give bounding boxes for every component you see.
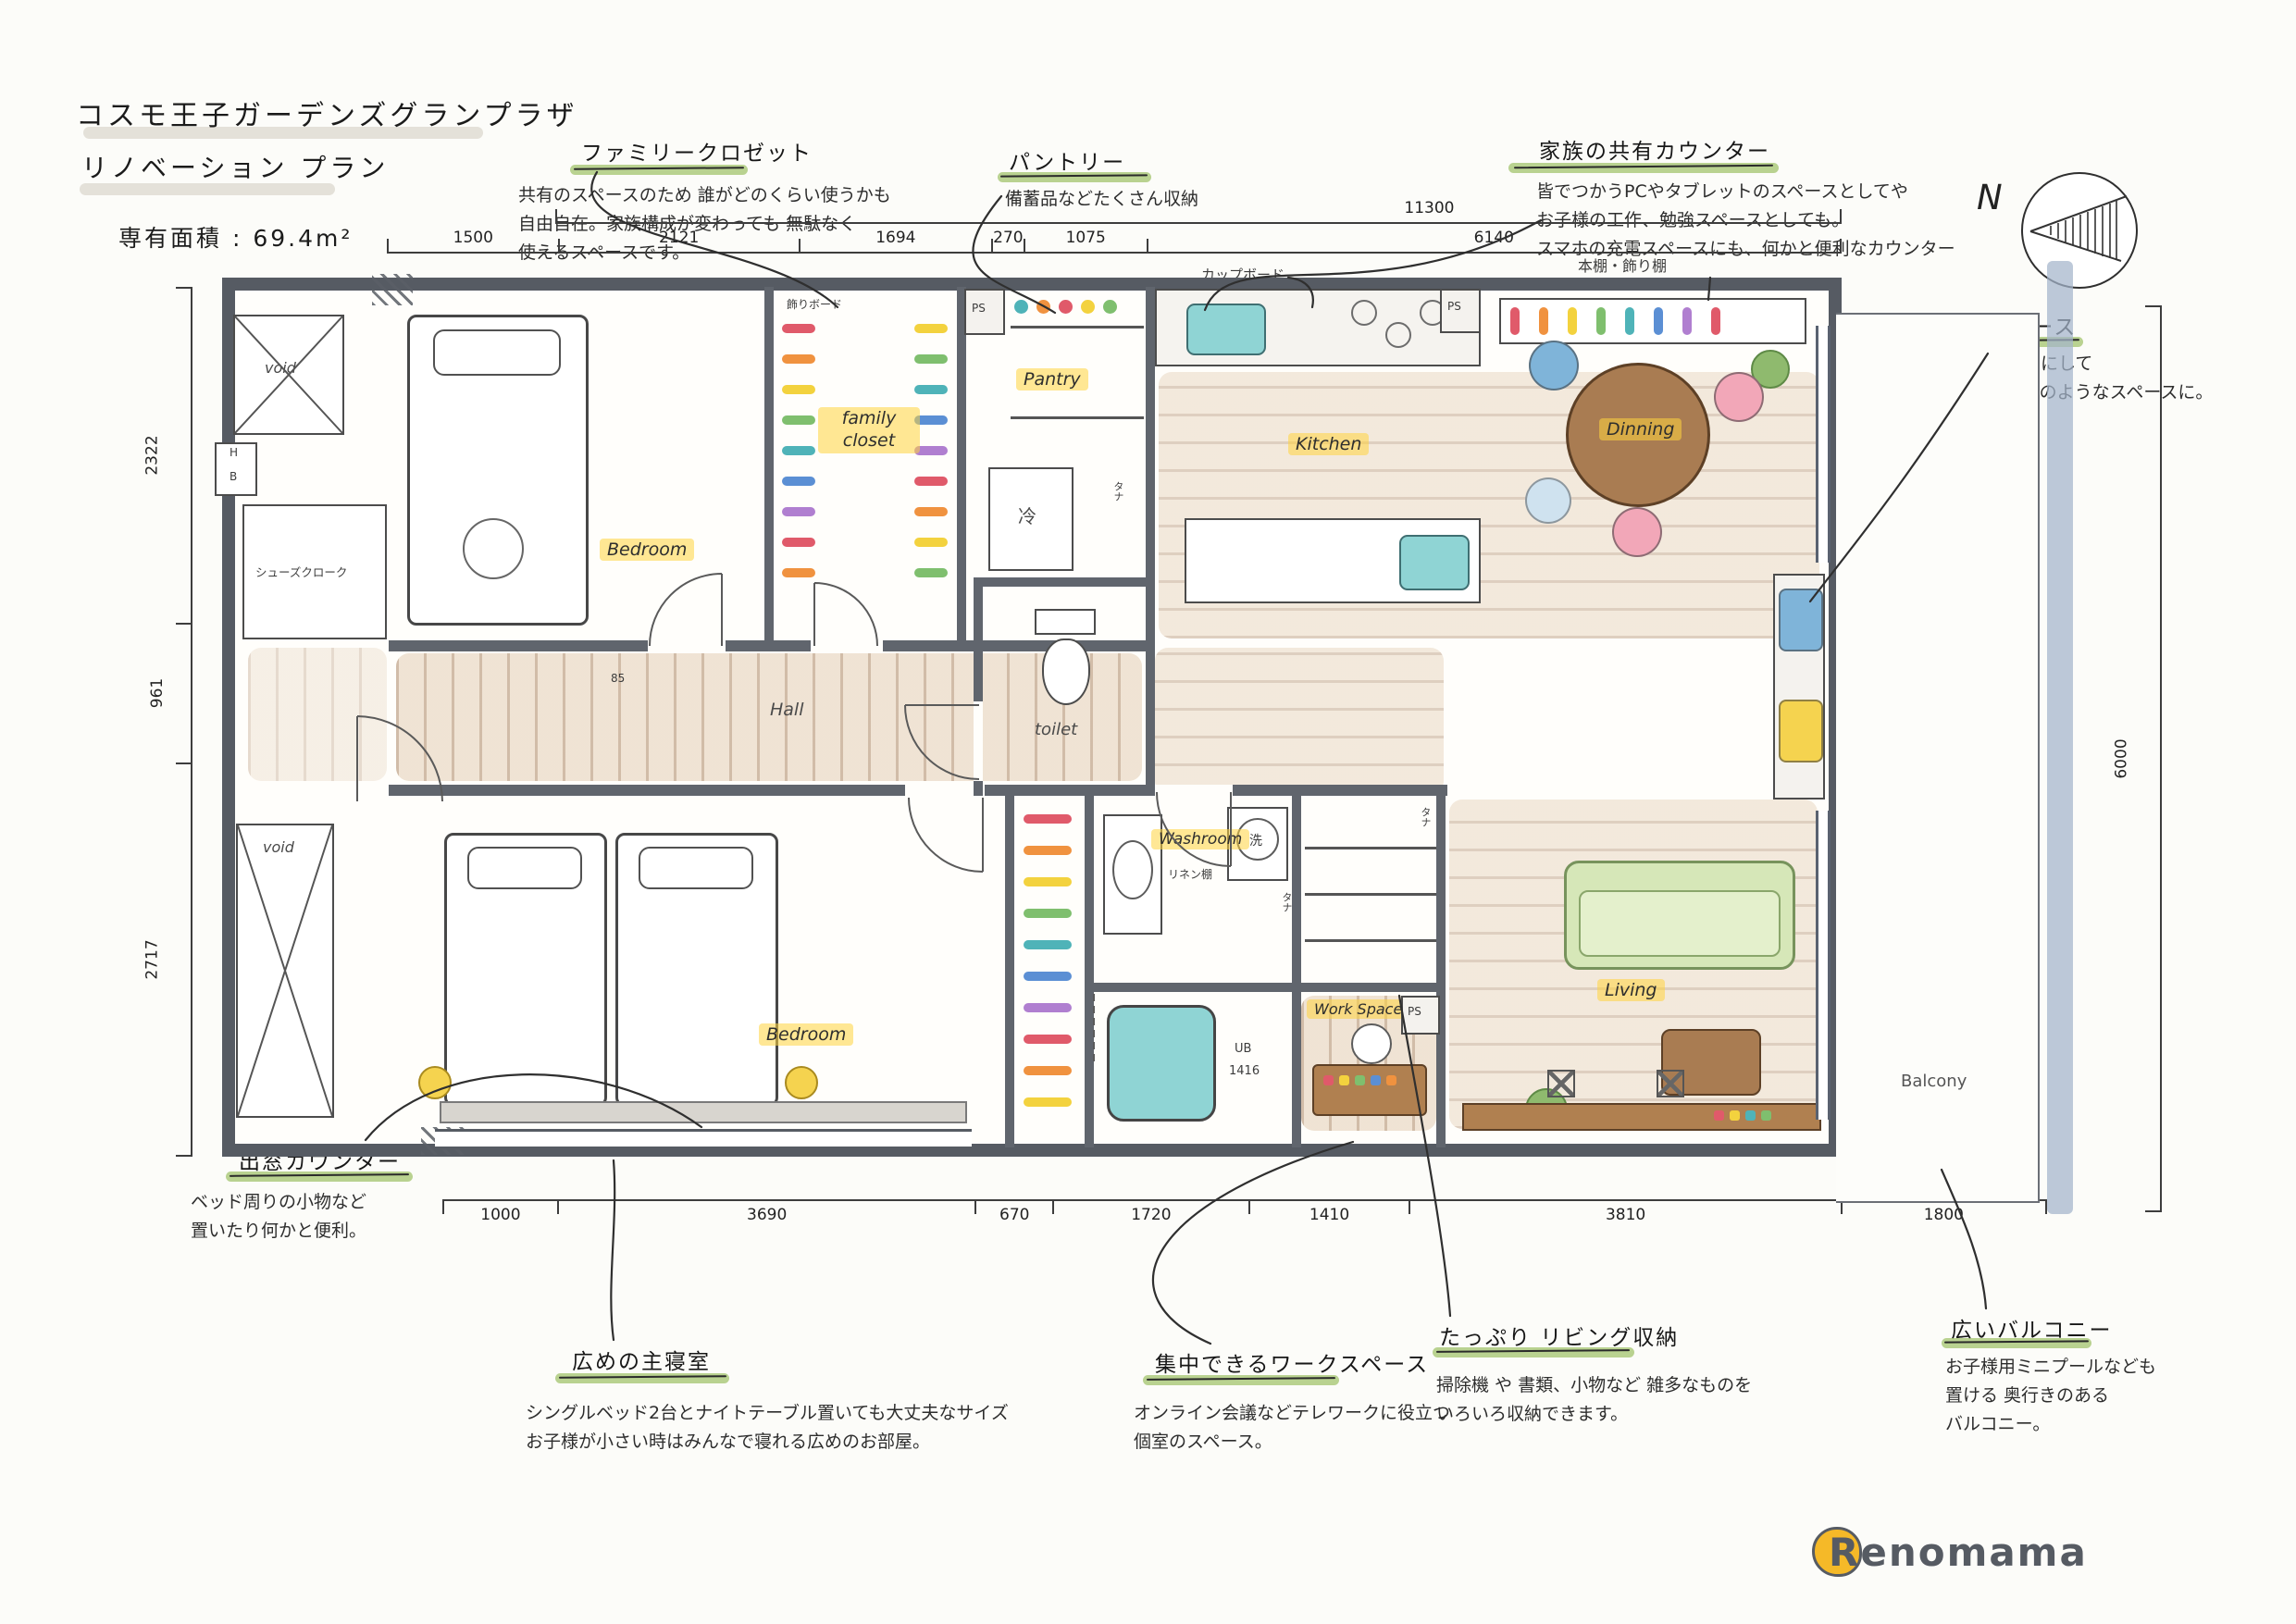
hanger-stripe: [1024, 814, 1072, 824]
unit-bath-label: UB: [1235, 1042, 1251, 1056]
dim-segment: 3690: [557, 1199, 975, 1214]
note-pantry-underline: [998, 172, 1151, 182]
desk-item: [1339, 1075, 1349, 1085]
hanger-stripe: [1024, 1097, 1072, 1107]
bedroom1-label: Bedroom: [600, 539, 694, 561]
hanger-stripe: [782, 477, 815, 486]
wall: [1296, 785, 1447, 796]
pantry-item: [1059, 300, 1073, 314]
book-spine: [1568, 307, 1577, 335]
pipe-space-label: PS: [1447, 300, 1461, 313]
vanity-basin: [1112, 840, 1153, 899]
hall-floor: [396, 653, 1142, 781]
toilet-label: toilet: [1035, 720, 1077, 739]
workspace-desk: [1312, 1064, 1427, 1116]
plan-subtitle: リノベーション プラン: [81, 148, 389, 185]
dim-segment: 1410: [1248, 1199, 1409, 1214]
washroom-label: Washroom: [1151, 829, 1249, 849]
dim-segment: 6140: [1147, 239, 1842, 254]
building-title: コスモ王子ガーデンズグランプラザ: [76, 93, 578, 133]
wall: [1292, 983, 1446, 992]
door-gap: [648, 640, 726, 651]
counter-stool: [1657, 1070, 1684, 1097]
hanger-stripe: [1024, 846, 1072, 855]
hanger-stripe: [1024, 972, 1072, 981]
island-sink: [1399, 535, 1470, 590]
hanger-stripe: [782, 415, 815, 425]
balcony-window: [1816, 811, 1831, 1120]
void-box: [236, 824, 334, 1118]
hanger-stripe: [1024, 1035, 1072, 1044]
book-spine: [1654, 307, 1663, 335]
kitchen-label: Kitchen: [1288, 433, 1369, 455]
wall: [1292, 794, 1301, 1147]
storage-shelf-line: [1305, 939, 1436, 942]
void-label: void: [265, 359, 296, 377]
pantry-shelf-line: [1011, 326, 1144, 329]
dim-segment: 2717: [176, 762, 192, 1157]
desk-item: [1323, 1075, 1334, 1085]
hanger-stripe: [782, 446, 815, 455]
meter-box-h-label: H: [230, 446, 238, 459]
bookshelf-label: 本棚・飾り棚: [1578, 254, 1667, 276]
dim-segment: 1694: [799, 239, 991, 254]
pillow: [433, 329, 561, 376]
bedside-lamp: [418, 1066, 452, 1099]
hanger-stripe: [914, 477, 948, 486]
note-family-closet-underline: [570, 165, 748, 175]
dim-segment: 2322: [176, 287, 192, 623]
book-spine: [1510, 307, 1520, 335]
meter-box-b-label: B: [230, 470, 237, 483]
stove-burner: [1351, 300, 1377, 326]
note-workspace-label: 集中できるワークスペース: [1155, 1346, 1429, 1378]
shelf-label: タナ: [1418, 807, 1433, 827]
dim-segment: 3810: [1409, 1199, 1840, 1214]
wall: [1005, 794, 1014, 1147]
wall: [764, 287, 774, 648]
hanger-stripe: [1024, 1003, 1072, 1012]
hanger-stripe: [914, 507, 948, 516]
wall: [1146, 287, 1155, 796]
logo-text: Renomama: [1829, 1530, 2088, 1575]
dim-segment: 1075: [1024, 239, 1147, 254]
bathtub: [1107, 1005, 1216, 1122]
bench-cushion-blue: [1779, 589, 1823, 651]
note-master-bedroom-label: 広めの主寝室: [572, 1344, 711, 1375]
note-wide-balcony-underline: [1942, 1338, 2091, 1348]
stove-burner: [1385, 322, 1411, 348]
pillow: [639, 847, 753, 889]
door-width-label: 85: [611, 672, 625, 685]
linen-shelf-label: リネン棚: [1168, 866, 1212, 882]
shoes-closet-label: シューズクローク: [255, 563, 347, 580]
pantry-item: [1103, 300, 1117, 314]
wall: [1436, 794, 1446, 1147]
dining-chair: [1529, 341, 1579, 391]
note-living-storage-underline: [1433, 1347, 1634, 1357]
note-master-bedroom-underline: [555, 1373, 729, 1383]
wall: [389, 785, 1096, 796]
compass-fan-icon: [2023, 174, 2136, 287]
counter-item: [1730, 1110, 1740, 1121]
note-workspace-desc: オンライン会議などテレワークに役立つ 個室のスペース。: [1134, 1399, 1450, 1457]
display-board-label: 飾りボード: [787, 296, 842, 312]
book-spine: [1539, 307, 1548, 335]
book-spine: [1711, 307, 1720, 335]
book-spine: [1682, 307, 1692, 335]
counter-item: [1761, 1110, 1771, 1121]
entry-floor: [248, 648, 387, 781]
hanger-stripe: [914, 568, 948, 577]
balcony-boundary-line: [2047, 261, 2073, 1214]
desk-item: [1371, 1075, 1381, 1085]
refrigerator-label: 冷: [1018, 502, 1036, 528]
note-wide-balcony-desc: お子様用ミニプールなども 置ける 奥行きのある バルコニー。: [1945, 1353, 2156, 1438]
pillow: [467, 847, 582, 889]
dim-segment: 6000: [2145, 305, 2162, 1212]
counter-stool: [1547, 1070, 1575, 1097]
storage-shelf-line: [1305, 893, 1436, 896]
dim-left-column: 2322 961 2717: [150, 287, 192, 1157]
hanger-stripe: [1024, 1066, 1072, 1075]
note-living-storage-desc: 掃除機 や 書類、小物など 雑多なものを いろいろ収納できます。: [1436, 1371, 1752, 1429]
pipe-space-label: PS: [1408, 1005, 1421, 1018]
dim-segment: 1000: [442, 1199, 557, 1214]
hall-label: Hall: [770, 700, 804, 720]
note-workspace-underline: [1143, 1375, 1339, 1385]
ldk-corridor-floor: [1155, 648, 1444, 794]
dim-segment: 1720: [1052, 1199, 1248, 1214]
pipe-space-label: PS: [972, 302, 986, 315]
unit-bath-size-label: 1416: [1229, 1064, 1260, 1078]
family-closet-label: family closet: [818, 407, 920, 453]
kitchen-sink: [1186, 304, 1266, 355]
living-label: Living: [1597, 979, 1665, 1001]
hanger-stripe: [1024, 877, 1072, 886]
dim-top-row: 1500 2121 1694 270 1075 6140: [387, 239, 1842, 254]
hanger-stripe: [914, 324, 948, 333]
note-pantry-label: パントリー: [1009, 144, 1125, 176]
hanger-stripe: [914, 385, 948, 394]
hanger-stripe: [1024, 909, 1072, 918]
dim-segment: 270: [991, 239, 1024, 254]
door-gap: [811, 640, 883, 651]
hanger-stripe: [1024, 940, 1072, 949]
void-label: void: [263, 838, 294, 856]
note-family-closet-desc: 共有のスペースのため 誰がどのくらい使うかも 自由自在。家族構成が変わっても 無…: [518, 181, 891, 267]
bench-cushion-yellow: [1779, 700, 1823, 762]
floor-plan-sheet: コスモ王子ガーデンズグランプラザ リノベーション プラン 専有面積 : 69.4…: [0, 0, 2296, 1624]
shelf-label: タナ: [1111, 481, 1125, 502]
wall: [1085, 794, 1094, 1147]
pantry-label: Pantry: [1016, 368, 1088, 391]
note-family-counter-label: 家族の共有カウンター: [1539, 133, 1770, 165]
north-label: N: [1977, 178, 2003, 217]
book-spine: [1625, 307, 1634, 335]
hanger-stripe: [782, 324, 815, 333]
toilet-tank: [1035, 609, 1096, 635]
blanket-detail: [463, 518, 524, 579]
balcony-label: Balcony: [1901, 1072, 1967, 1091]
dim-segment: 670: [974, 1199, 1052, 1214]
hanger-stripe: [914, 538, 948, 547]
dining-chair: [1714, 372, 1764, 422]
dim-segment: 2121: [558, 239, 799, 254]
note-master-bedroom-desc: シングルベッド2台とナイトテーブル置いても大丈夫なサイズ お子様が小さい時はみん…: [526, 1399, 1009, 1457]
hanger-stripe: [782, 354, 815, 364]
wall-hatch: [372, 274, 413, 305]
hanger-stripe: [782, 507, 815, 516]
pantry-item: [1081, 300, 1095, 314]
note-family-counter-underline: [1508, 163, 1779, 173]
dim-bottom-row: 1000 3690 670 1720 1410 3810 1800: [442, 1199, 2047, 1214]
shelf-label: タナ: [1279, 892, 1294, 912]
master-bedroom-label: Bedroom: [759, 1023, 853, 1046]
hanger-stripe: [782, 538, 815, 547]
book-spine: [1596, 307, 1606, 335]
balcony-window: [1816, 326, 1831, 563]
desk-item: [1386, 1075, 1396, 1085]
area-text: 専有面積 : 69.4m²: [118, 220, 353, 254]
dim-segment: 11300: [555, 209, 1842, 224]
dim-right-column: 6000: [2119, 305, 2162, 1212]
balcony-area: [1836, 313, 2040, 1203]
renomama-logo: Renomama: [1812, 1527, 2088, 1577]
toilet-bowl: [1042, 638, 1090, 705]
bedside-lamp: [785, 1066, 818, 1099]
pantry-item: [1014, 300, 1028, 314]
dining-label: Dinning: [1599, 418, 1682, 440]
counter-item: [1745, 1110, 1756, 1121]
hanger-stripe: [782, 385, 815, 394]
bay-window-counter: [440, 1101, 967, 1123]
dim-segment: 1500: [387, 239, 558, 254]
note-bay-counter-underline: [226, 1172, 413, 1182]
compass-icon: [2021, 172, 2138, 289]
hanger-stripe: [782, 568, 815, 577]
note-family-closet-label: ファミリークロゼット: [581, 135, 813, 167]
note-living-storage-label: たっぷり リビング収納: [1439, 1320, 1679, 1351]
workspace-label: Work Space: [1307, 999, 1409, 1019]
dining-chair: [1612, 507, 1662, 557]
wall: [1088, 983, 1301, 992]
counter-item: [1714, 1110, 1724, 1121]
washer-label: 洗: [1249, 831, 1262, 849]
storage-shelf-line: [1305, 847, 1436, 849]
sofa-seat: [1579, 890, 1781, 957]
wall: [974, 577, 1155, 587]
bay-window: [435, 1129, 972, 1149]
dim-segment: 961: [176, 623, 192, 762]
desk-chair: [1351, 1023, 1392, 1064]
door-gap: [974, 701, 983, 781]
pantry-item: [1036, 300, 1050, 314]
door-gap: [1155, 785, 1233, 796]
note-bay-counter-desc: ベッド周りの小物など 置いたり何かと便利。: [191, 1188, 366, 1246]
desk-item: [1355, 1075, 1365, 1085]
dim-top-total: 11300: [555, 209, 1842, 224]
wall: [957, 287, 966, 648]
hanger-stripe: [914, 354, 948, 364]
pantry-shelf-line: [1011, 416, 1144, 419]
dining-chair: [1525, 477, 1571, 524]
